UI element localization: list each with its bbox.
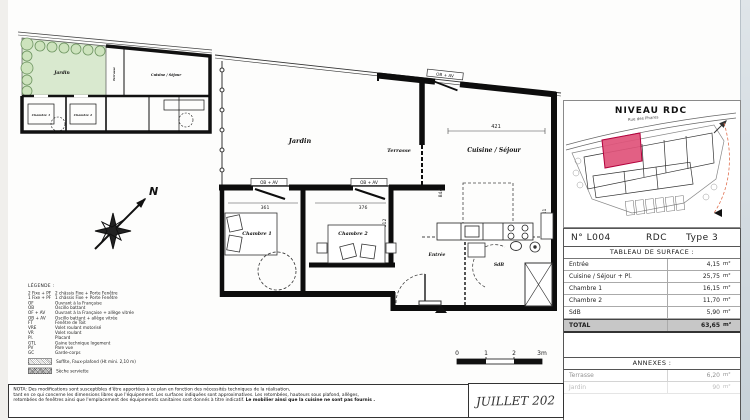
niveau-rdc-map: NIVEAU RDC Rue des Phares (564, 101, 738, 225)
kitchen-counter (437, 223, 533, 240)
svg-text:1: 1 (484, 350, 488, 357)
window-label-chambre2: OB + AV (351, 179, 387, 186)
table-row: Entrée 4,15m² (564, 259, 740, 271)
interior-walls (303, 79, 554, 308)
scan-edge-left (0, 0, 8, 420)
window-label-chambre1: OB + AV (251, 179, 287, 186)
dimension-lines (228, 128, 545, 203)
annex-row: Jardin 90m² (564, 382, 740, 394)
entry-door (396, 274, 441, 305)
map-compass-arrow (714, 121, 726, 133)
table-row: Chambre 1 16,15m² (564, 283, 740, 295)
title-block-date-box: JUILLET 202 (468, 383, 564, 418)
nota-box: NOTA: Des modifications sont susceptible… (8, 384, 469, 418)
table-row: Cuisine / Séjour + Pl. 25,75m² (564, 271, 740, 283)
type-label: Type 3 (686, 233, 740, 243)
scale-bar: 0 1 2 3m (450, 346, 550, 370)
map-site-boundary (572, 125, 724, 213)
table-row: Chambre 2 11,70m² (564, 295, 740, 307)
total-row: TOTAL 63,65m² (564, 319, 740, 333)
main-plan: Jardin Terrasse Cuisine / Séjour OB + AV… (213, 15, 563, 325)
annexes-header: ANNEXES : (564, 357, 740, 370)
svg-text:361: 361 (261, 205, 270, 211)
cuisine-label: Cuisine / Séjour (467, 147, 521, 154)
surface-table: N° L004 RDC Type 3 TABLEAU DE SURFACE : … (563, 228, 741, 420)
svg-text:Cuisine / Séjour: Cuisine / Séjour (151, 73, 181, 77)
jardin-label: Jardin (287, 137, 312, 145)
compass-n-label: N (149, 185, 158, 198)
entree-label: Entrée (428, 251, 446, 258)
lot-number: N° L004 (564, 233, 627, 243)
terrasse-label: Terrasse (387, 148, 411, 154)
table-row: SdB 5,90m² (564, 307, 740, 319)
table-header: TABLEAU DE SURFACE : (564, 247, 740, 259)
chambre1-label: Chambre 1 (242, 231, 271, 237)
niveau-rdc-map-box: NIVEAU RDC Rue des Phares (563, 100, 741, 228)
spacer (564, 333, 740, 357)
svg-text:OB + AV: OB + AV (260, 180, 278, 185)
legend: LÉGENDE : 2 Fixe + PF2 châssis Fixe + Po… (28, 284, 148, 380)
svg-text:421: 421 (491, 124, 501, 130)
garden-fence (220, 61, 224, 188)
unit-header: N° L004 RDC Type 3 (564, 229, 740, 247)
north-compass: N (85, 183, 165, 261)
svg-text:3m: 3m (537, 350, 547, 357)
highlighted-unit (602, 133, 642, 168)
garden-wall-windows (219, 186, 445, 199)
legend-title: LÉGENDE : (28, 284, 148, 289)
svg-text:Terrasse: Terrasse (112, 67, 116, 81)
annex-row: Terrasse 6,20m² (564, 370, 740, 382)
sdb-label: SdB (494, 262, 504, 268)
mini-plan: Jardin Cuisine / Séjour Terrasse Chambre… (14, 12, 214, 162)
level-label: RDC (627, 233, 686, 243)
floor-plan-sheet: { "plan": { "rooms": { "jardin": "Jardin… (0, 0, 750, 420)
svg-text:844: 844 (438, 189, 444, 198)
chambre2-label: Chambre 2 (338, 231, 368, 237)
mini-jardin-label: Jardin (53, 70, 70, 76)
nota-line3: retombées de fenêtres ainsi que l'emplac… (13, 397, 464, 402)
svg-text:Chambre 2: Chambre 2 (74, 113, 92, 117)
svg-text:0: 0 (455, 350, 459, 357)
bed-chambre1 (225, 213, 296, 290)
scan-edge-right (740, 0, 750, 420)
svg-text:376: 376 (359, 205, 368, 211)
seche-serviette-swatch (28, 368, 52, 374)
svg-text:2: 2 (512, 350, 516, 357)
svg-text:OB + AV: OB + AV (360, 180, 378, 185)
mini-garden: Jardin (21, 38, 106, 96)
soffite-swatch (28, 359, 52, 365)
plan-date: JUILLET 202 (476, 393, 555, 408)
svg-text:Chambre 1: Chambre 1 (32, 113, 50, 117)
